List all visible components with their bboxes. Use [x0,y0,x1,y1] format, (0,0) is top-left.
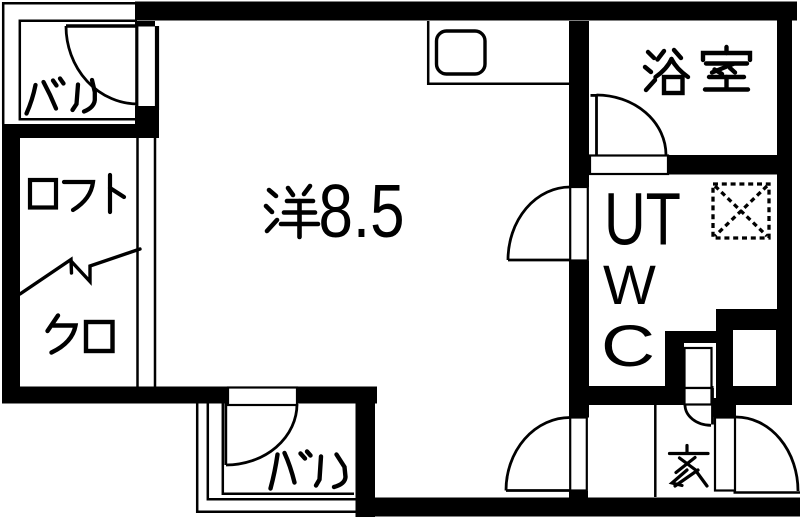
svg-text:W: W [603,253,656,316]
svg-text:C: C [601,314,655,379]
svg-text:UT: UT [604,179,681,262]
svg-text:8.5: 8.5 [319,169,405,253]
